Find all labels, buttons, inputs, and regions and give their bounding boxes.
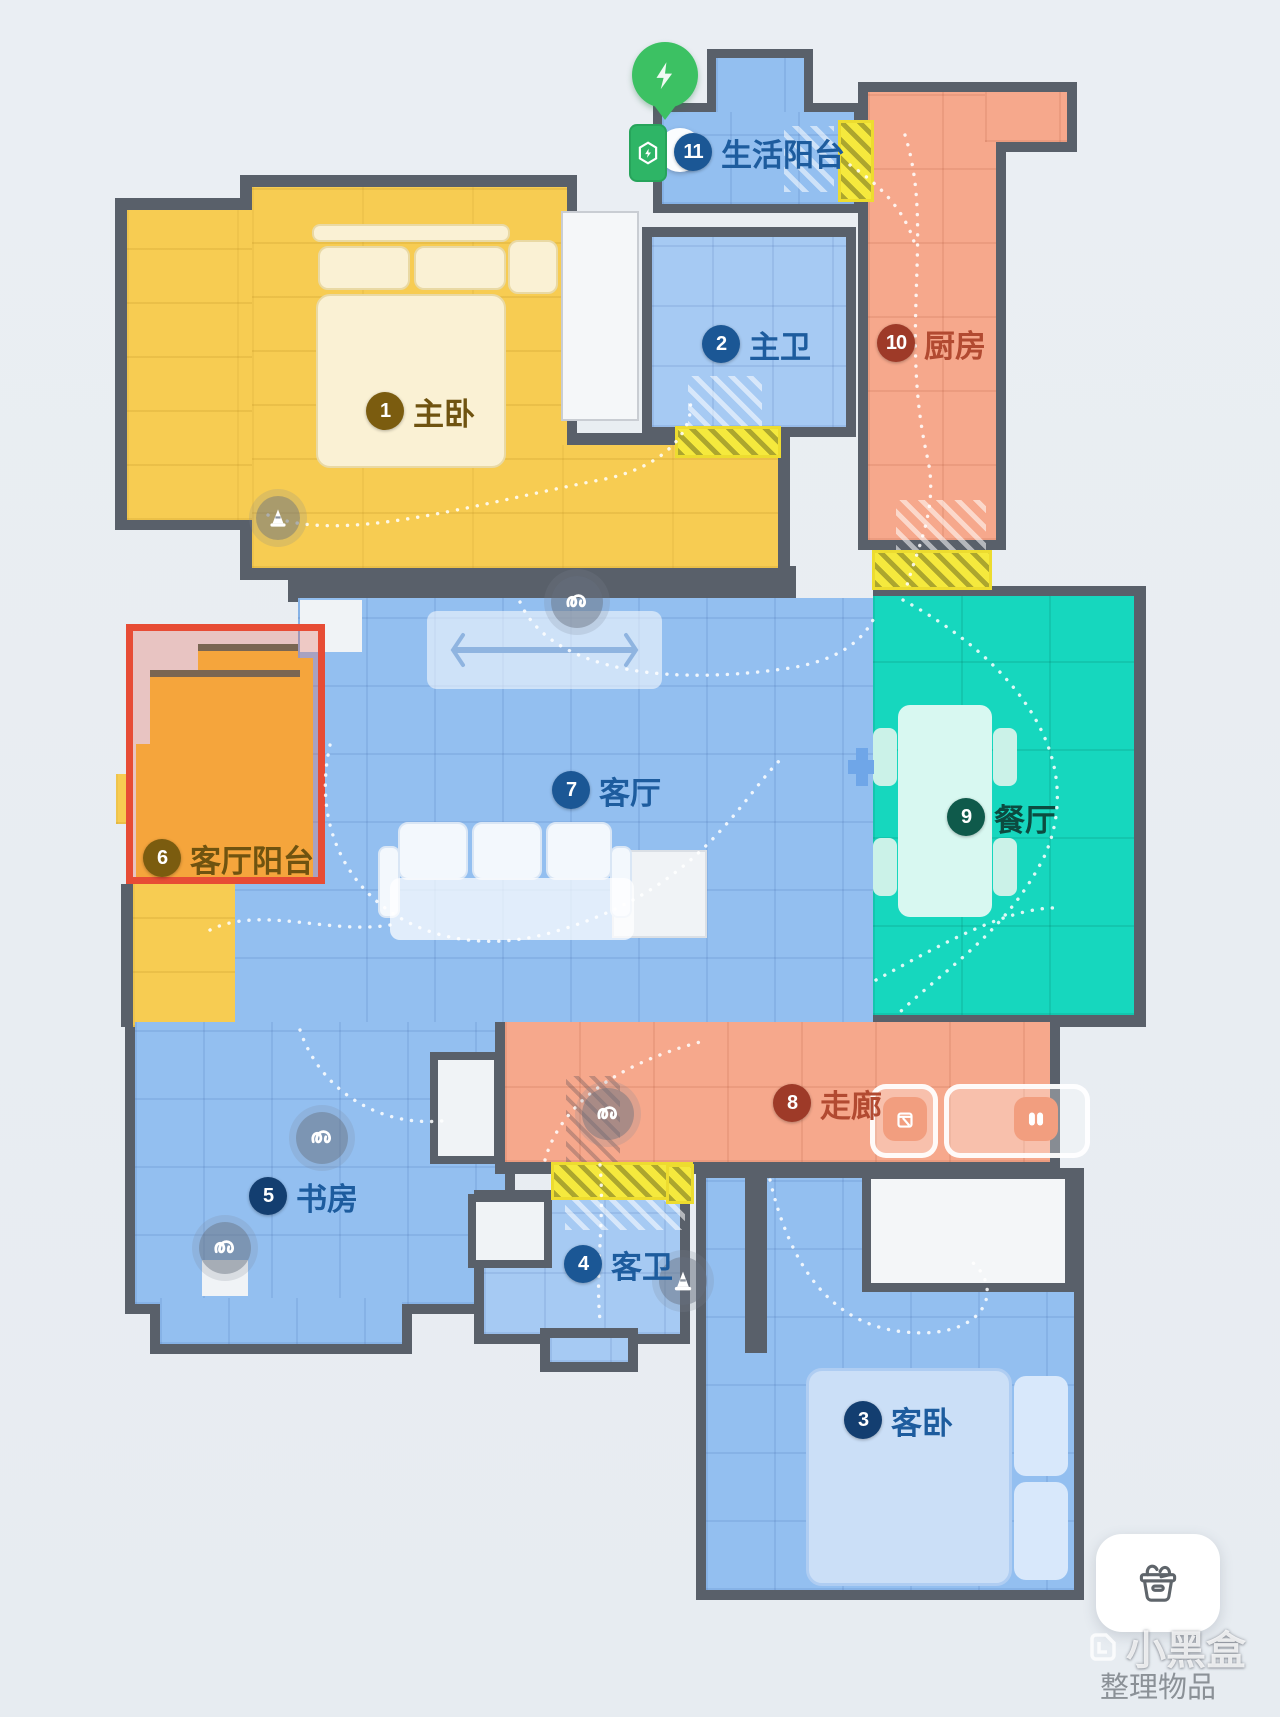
room-badge: 7	[552, 771, 590, 809]
bed-pillow	[1014, 1482, 1068, 1580]
room-label-5[interactable]: 5 书房	[249, 1177, 358, 1215]
room-badge: 3	[844, 1401, 882, 1439]
room-10-floor[interactable]	[985, 92, 1067, 142]
sofa-cushion	[472, 822, 542, 880]
room-label-2[interactable]: 2 主卫	[702, 325, 811, 363]
bed-pillow	[318, 246, 410, 290]
room-badge: 10	[877, 324, 915, 362]
bed-pillow	[414, 246, 506, 290]
tv-cabinet	[427, 611, 662, 689]
lightning-icon	[648, 58, 682, 92]
dining-chair	[873, 838, 897, 896]
storage-box-icon	[1131, 1556, 1185, 1610]
tangle-hazard-marker[interactable]	[551, 576, 603, 628]
dining-chair	[873, 728, 897, 786]
bed-headboard	[312, 224, 510, 242]
unexplored-patch	[430, 1052, 502, 1164]
dining-chair	[993, 838, 1017, 896]
room-4-floor[interactable]	[540, 1328, 638, 1372]
unexplored-patch	[468, 1194, 552, 1268]
room-name: 生活阳台	[721, 130, 845, 175]
wall	[288, 566, 796, 602]
room-badge: 2	[702, 325, 740, 363]
room-badge: 11	[674, 133, 712, 171]
bin-icon	[883, 1097, 927, 1141]
tangle-hazard-marker[interactable]	[199, 1222, 251, 1274]
wardrobe	[862, 1170, 1074, 1292]
watermark-text: 小黑盒	[1126, 1618, 1246, 1676]
robot-vacuum-map-screen: 1 主卧 2 主卫 3 客卧 4 客卫 5 书房 6 客厅阳台 7 客厅 8 走…	[0, 0, 1280, 1717]
bed-mattress	[316, 294, 506, 468]
room-badge: 4	[564, 1245, 602, 1283]
room-label-10[interactable]: 10 厨房	[877, 324, 986, 362]
sofa-seat	[390, 878, 634, 940]
door-threshold[interactable]	[666, 1164, 694, 1204]
room-name: 走廊	[820, 1081, 882, 1126]
slippers-icon	[1014, 1097, 1058, 1141]
room-10-floor[interactable]	[868, 92, 996, 540]
map-artifact	[856, 748, 868, 786]
door-threshold[interactable]	[872, 550, 992, 590]
room-label-1[interactable]: 1 主卧	[366, 392, 475, 430]
room-badge: 6	[143, 839, 181, 877]
nightstand	[508, 240, 558, 294]
sofa-cushion	[398, 822, 468, 880]
charge-status-pin[interactable]	[632, 42, 698, 108]
watermark: 小黑盒	[1084, 1618, 1246, 1676]
room-badge: 1	[366, 392, 404, 430]
room-label-3[interactable]: 3 客卧	[844, 1401, 953, 1439]
sofa-cushion	[546, 822, 612, 880]
room-badge: 9	[947, 798, 985, 836]
room-name: 客厅	[599, 768, 661, 813]
room-name: 书房	[296, 1174, 358, 1219]
pin-tail	[653, 104, 677, 120]
room-name: 客卫	[611, 1242, 673, 1287]
obstacle-cone-marker[interactable]	[256, 496, 300, 540]
room-name: 餐厅	[994, 795, 1056, 840]
room-name: 客厅阳台	[190, 836, 314, 881]
dining-chair	[993, 728, 1017, 786]
room-1-floor[interactable]	[127, 210, 257, 520]
room-label-4[interactable]: 4 客卫	[564, 1245, 673, 1283]
room-label-6[interactable]: 6 客厅阳台	[143, 839, 314, 877]
tangle-hazard-marker[interactable]	[582, 1088, 634, 1140]
charging-dock-icon[interactable]	[629, 124, 667, 182]
room-name: 厨房	[924, 321, 986, 366]
room-name: 客卧	[891, 1398, 953, 1443]
tangle-hazard-marker[interactable]	[296, 1112, 348, 1164]
room-name: 主卫	[749, 322, 811, 367]
room-label-11[interactable]: 11 生活阳台	[674, 133, 845, 171]
tv-icon	[427, 611, 662, 689]
no-mop-hatch	[688, 376, 762, 428]
door-threshold[interactable]	[675, 426, 781, 458]
room-1-floor[interactable]	[562, 445, 778, 568]
room-label-7[interactable]: 7 客厅	[552, 771, 661, 809]
no-mop-hatch	[896, 500, 986, 552]
room-1-floor[interactable]	[133, 884, 235, 1027]
bed-pillow	[1014, 1376, 1068, 1476]
room-badge: 8	[773, 1084, 811, 1122]
unexplored-closet-area	[561, 211, 639, 421]
room-badge: 5	[249, 1177, 287, 1215]
wall	[121, 884, 133, 1027]
room-label-9[interactable]: 9 餐厅	[947, 798, 1056, 836]
watermark-logo-icon	[1084, 1629, 1120, 1665]
room-name: 主卧	[413, 389, 475, 434]
room-label-8[interactable]: 8 走廊	[773, 1084, 882, 1122]
room-5-floor[interactable]	[160, 1298, 402, 1344]
wall	[745, 1178, 767, 1353]
